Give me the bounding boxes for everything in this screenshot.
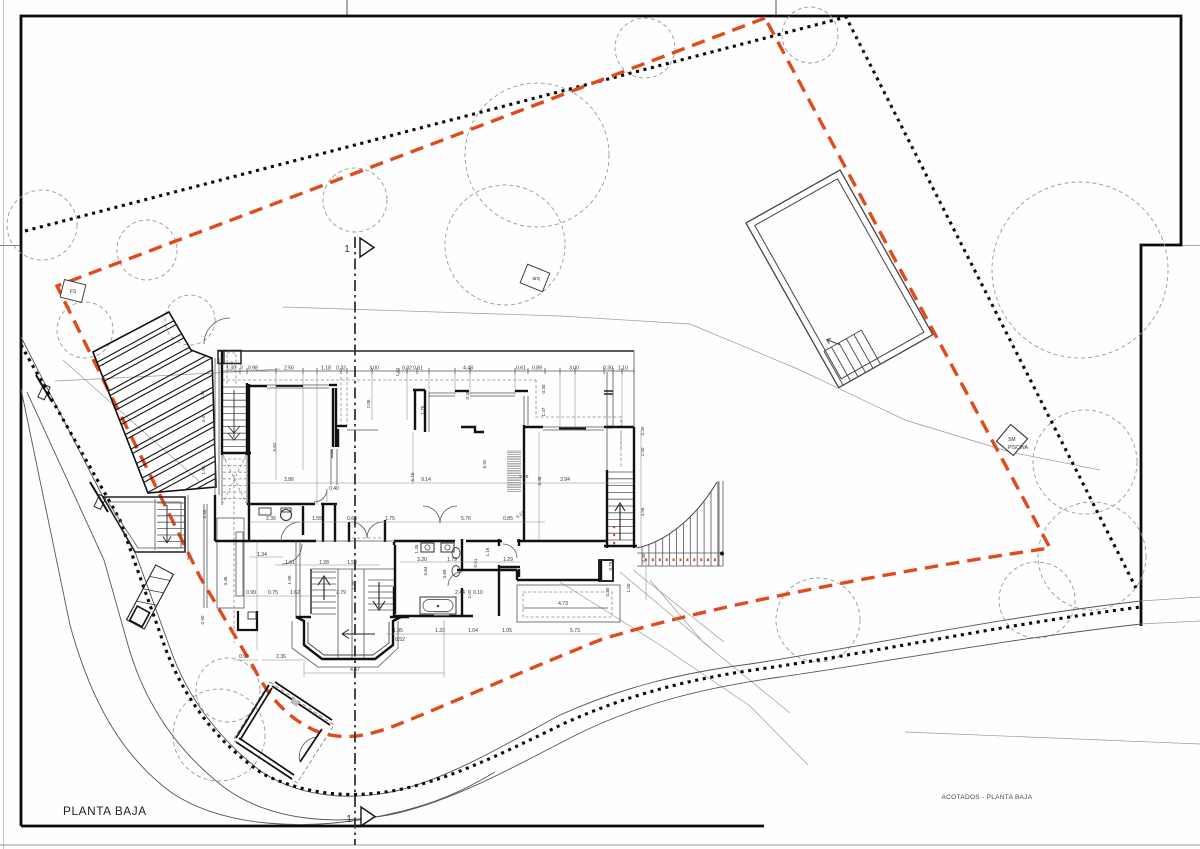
svg-text:2.02: 2.02 — [467, 589, 472, 598]
svg-text:0.61: 0.61 — [516, 366, 526, 372]
svg-text:0.10: 0.10 — [473, 590, 483, 596]
svg-text:5.73: 5.73 — [570, 628, 580, 634]
svg-text:1.47: 1.47 — [541, 407, 546, 416]
svg-text:2.44: 2.44 — [455, 590, 465, 596]
svg-text:0.85: 0.85 — [503, 516, 513, 522]
svg-text:5.62: 5.62 — [272, 442, 277, 451]
svg-text:2.50: 2.50 — [202, 509, 207, 518]
svg-text:1: 1 — [346, 814, 352, 825]
svg-text:5.48: 5.48 — [537, 476, 542, 485]
svg-text:0.30: 0.30 — [641, 553, 646, 562]
svg-text:0.98: 0.98 — [248, 366, 258, 372]
svg-text:0.32: 0.32 — [336, 366, 346, 372]
svg-text:2.36: 2.36 — [266, 516, 276, 522]
svg-text:SM: SM — [1008, 437, 1016, 443]
svg-text:0.90: 0.90 — [200, 615, 205, 624]
svg-text:5.76: 5.76 — [461, 516, 471, 522]
svg-text:3.46: 3.46 — [200, 390, 205, 399]
svg-text:1.85: 1.85 — [201, 465, 206, 474]
svg-text:3.00: 3.00 — [569, 366, 579, 372]
svg-text:ACOTADOS - PLANTA BAJA: ACOTADOS - PLANTA BAJA — [942, 794, 1033, 801]
svg-text:1.76: 1.76 — [420, 405, 425, 414]
svg-text:1.05: 1.05 — [502, 628, 512, 634]
svg-text:0.51: 0.51 — [473, 558, 478, 567]
svg-text:6.92: 6.92 — [482, 459, 487, 468]
svg-text:2.06: 2.06 — [366, 399, 371, 408]
svg-text:1.33: 1.33 — [435, 628, 445, 634]
svg-text:4.73: 4.73 — [558, 601, 568, 607]
svg-text:1.55: 1.55 — [312, 516, 322, 522]
svg-text:4.48: 4.48 — [463, 366, 473, 372]
svg-text:1.95: 1.95 — [393, 628, 403, 634]
svg-text:PLANTA BAJA: PLANTA BAJA — [63, 804, 147, 818]
svg-text:PISCINA: PISCINA — [1008, 445, 1029, 451]
svg-text:1.30: 1.30 — [226, 366, 236, 372]
svg-text:0.32: 0.32 — [402, 366, 412, 372]
svg-text:0.89: 0.89 — [532, 366, 542, 372]
svg-text:2.50: 2.50 — [284, 366, 294, 372]
svg-text:0.61: 0.61 — [413, 366, 423, 372]
svg-text:0.30: 0.30 — [541, 384, 546, 393]
svg-text:3.41: 3.41 — [201, 413, 206, 422]
svg-text:1.16: 1.16 — [485, 547, 490, 556]
svg-text:0.30: 0.30 — [603, 366, 613, 372]
svg-text:9.14: 9.14 — [421, 477, 431, 483]
svg-text:1.10: 1.10 — [618, 366, 628, 372]
svg-text:3.00: 3.00 — [369, 366, 379, 372]
svg-text:1.75: 1.75 — [385, 516, 395, 522]
svg-text:FS: FS — [70, 289, 77, 295]
svg-text:1.00: 1.00 — [626, 583, 631, 592]
svg-text:0.75: 0.75 — [268, 590, 278, 596]
svg-text:3.94: 3.94 — [560, 477, 570, 483]
svg-text:arq: arq — [532, 276, 539, 282]
svg-text:1.62: 1.62 — [290, 590, 300, 596]
svg-text:2.36: 2.36 — [276, 654, 286, 660]
svg-text:2.79: 2.79 — [336, 590, 346, 596]
svg-text:3.69: 3.69 — [442, 569, 447, 578]
svg-text:.67: .67 — [239, 363, 244, 369]
svg-text:0.30: 0.30 — [465, 390, 470, 399]
svg-text:3.46: 3.46 — [223, 576, 228, 585]
svg-text:0.99: 0.99 — [246, 590, 256, 596]
svg-text:0.64: 0.64 — [423, 566, 428, 575]
svg-text:1.99: 1.99 — [287, 575, 292, 584]
svg-text:1.18: 1.18 — [321, 366, 331, 372]
svg-text:0.99: 0.99 — [239, 654, 249, 660]
svg-text:3.86: 3.86 — [284, 477, 294, 483]
svg-text:0.40: 0.40 — [329, 486, 339, 492]
svg-text:1.35: 1.35 — [414, 544, 419, 553]
svg-text:0.52: 0.52 — [395, 637, 405, 643]
svg-text:0.30: 0.30 — [605, 587, 610, 596]
svg-text:1.92: 1.92 — [395, 367, 400, 376]
svg-text:1.04: 1.04 — [468, 628, 478, 634]
svg-text:1: 1 — [344, 244, 350, 255]
svg-text:0.25: 0.25 — [520, 474, 529, 479]
svg-text:5.16: 5.16 — [410, 472, 415, 481]
svg-text:0.75: 0.75 — [608, 561, 613, 570]
